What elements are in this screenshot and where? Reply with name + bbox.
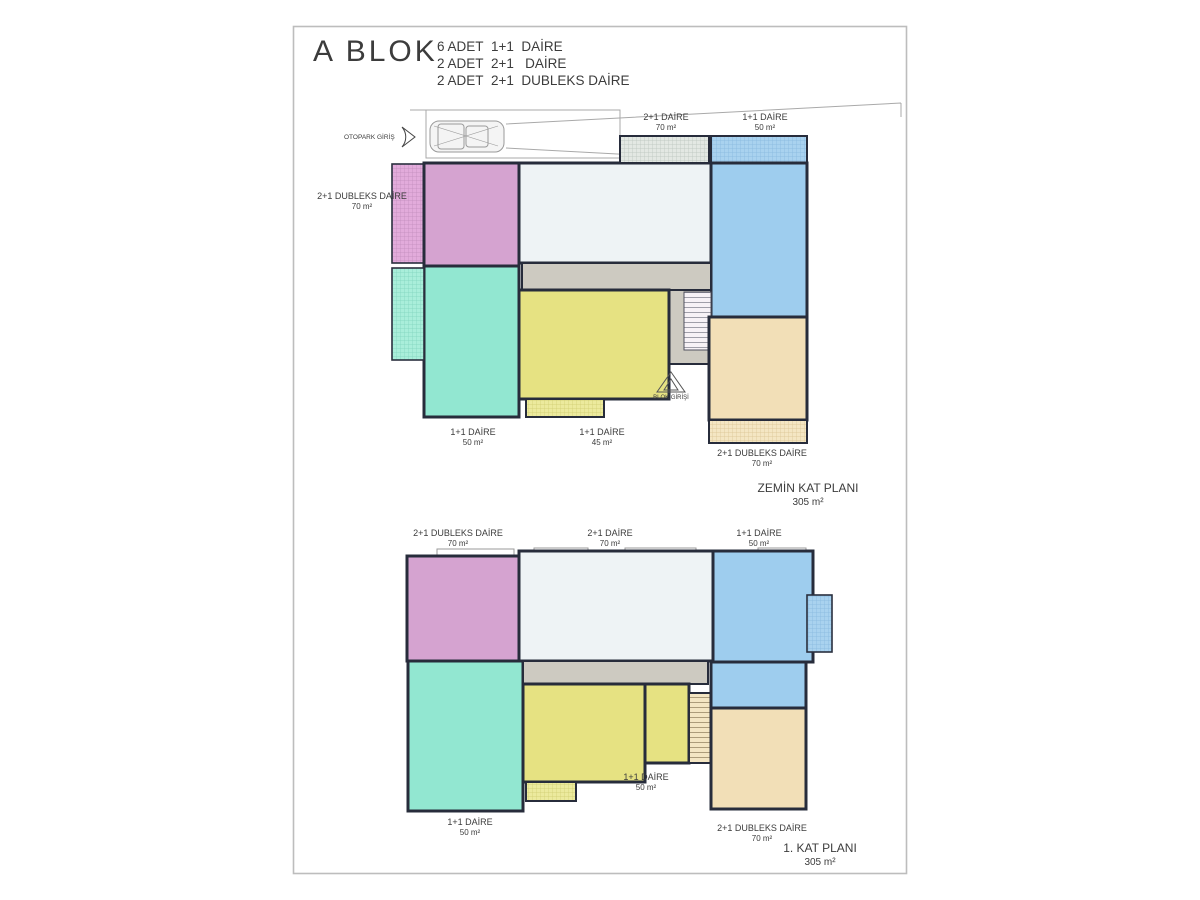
- svg-text:2+1 DUBLEKS DAİRE: 2+1 DUBLEKS DAİRE: [717, 823, 807, 833]
- svg-text:BLOK GİRİŞİ: BLOK GİRİŞİ: [653, 394, 689, 401]
- svg-text:70 m²: 70 m²: [752, 834, 773, 843]
- svg-text:70 m²: 70 m²: [448, 539, 469, 548]
- svg-text:305 m²: 305 m²: [792, 497, 824, 508]
- svg-text:2+1 DUBLEKS DAİRE: 2+1 DUBLEKS DAİRE: [317, 191, 407, 201]
- svg-text:50 m²: 50 m²: [636, 783, 657, 792]
- svg-text:50 m²: 50 m²: [460, 828, 481, 837]
- svg-text:70 m²: 70 m²: [600, 539, 621, 548]
- svg-text:2 ADET 2+1 DUBLEKS DAİRE: 2 ADET 2+1 DUBLEKS DAİRE: [437, 73, 629, 88]
- svg-text:50 m²: 50 m²: [755, 123, 776, 132]
- svg-text:2+1 DUBLEKS DAİRE: 2+1 DUBLEKS DAİRE: [717, 448, 807, 458]
- svg-text:1+1 DAİRE: 1+1 DAİRE: [742, 112, 787, 122]
- svg-text:50 m²: 50 m²: [463, 438, 484, 447]
- svg-text:1. KAT PLANI: 1. KAT PLANI: [783, 841, 857, 855]
- svg-text:OTOPARK GİRİŞ: OTOPARK GİRİŞ: [344, 132, 395, 141]
- svg-text:1+1 DAİRE: 1+1 DAİRE: [579, 427, 624, 437]
- svg-text:45 m²: 45 m²: [592, 438, 613, 447]
- svg-text:2+1 DUBLEKS DAİRE: 2+1 DUBLEKS DAİRE: [413, 528, 503, 538]
- svg-text:ZEMİN KAT PLANI: ZEMİN KAT PLANI: [758, 481, 859, 495]
- svg-text:1+1 DAİRE: 1+1 DAİRE: [736, 528, 781, 538]
- svg-text:50 m²: 50 m²: [749, 539, 770, 548]
- svg-text:70 m²: 70 m²: [352, 202, 373, 211]
- svg-text:2 ADET 2+1 DAİRE: 2 ADET 2+1 DAİRE: [437, 56, 566, 71]
- svg-text:A BLOK: A BLOK: [313, 35, 438, 68]
- svg-text:2+1 DAİRE: 2+1 DAİRE: [587, 528, 632, 538]
- svg-text:70 m²: 70 m²: [656, 123, 677, 132]
- svg-text:6 ADET 1+1 DAİRE: 6 ADET 1+1 DAİRE: [437, 39, 563, 54]
- svg-text:305 m²: 305 m²: [804, 857, 836, 868]
- svg-text:70 m²: 70 m²: [752, 459, 773, 468]
- svg-text:2+1 DAİRE: 2+1 DAİRE: [643, 112, 688, 122]
- svg-text:1+1 DAİRE: 1+1 DAİRE: [623, 772, 668, 782]
- svg-text:1+1 DAİRE: 1+1 DAİRE: [447, 817, 492, 827]
- svg-text:1+1 DAİRE: 1+1 DAİRE: [450, 427, 495, 437]
